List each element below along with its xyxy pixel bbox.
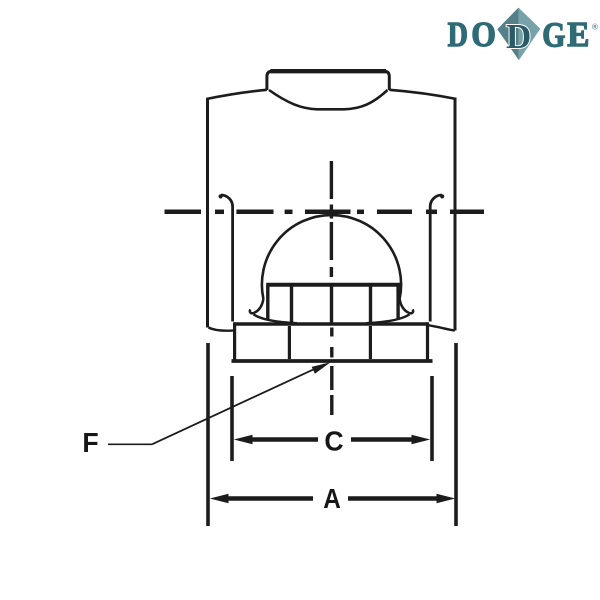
svg-text:D: D (506, 17, 531, 56)
svg-text:O: O (471, 16, 495, 55)
svg-text:E: E (567, 16, 589, 54)
svg-text:G: G (542, 16, 565, 55)
svg-text:C: C (324, 425, 343, 457)
svg-text:F: F (82, 426, 98, 458)
svg-text:A: A (323, 482, 341, 514)
svg-text:D: D (448, 15, 468, 54)
svg-text:®: ® (592, 23, 598, 32)
